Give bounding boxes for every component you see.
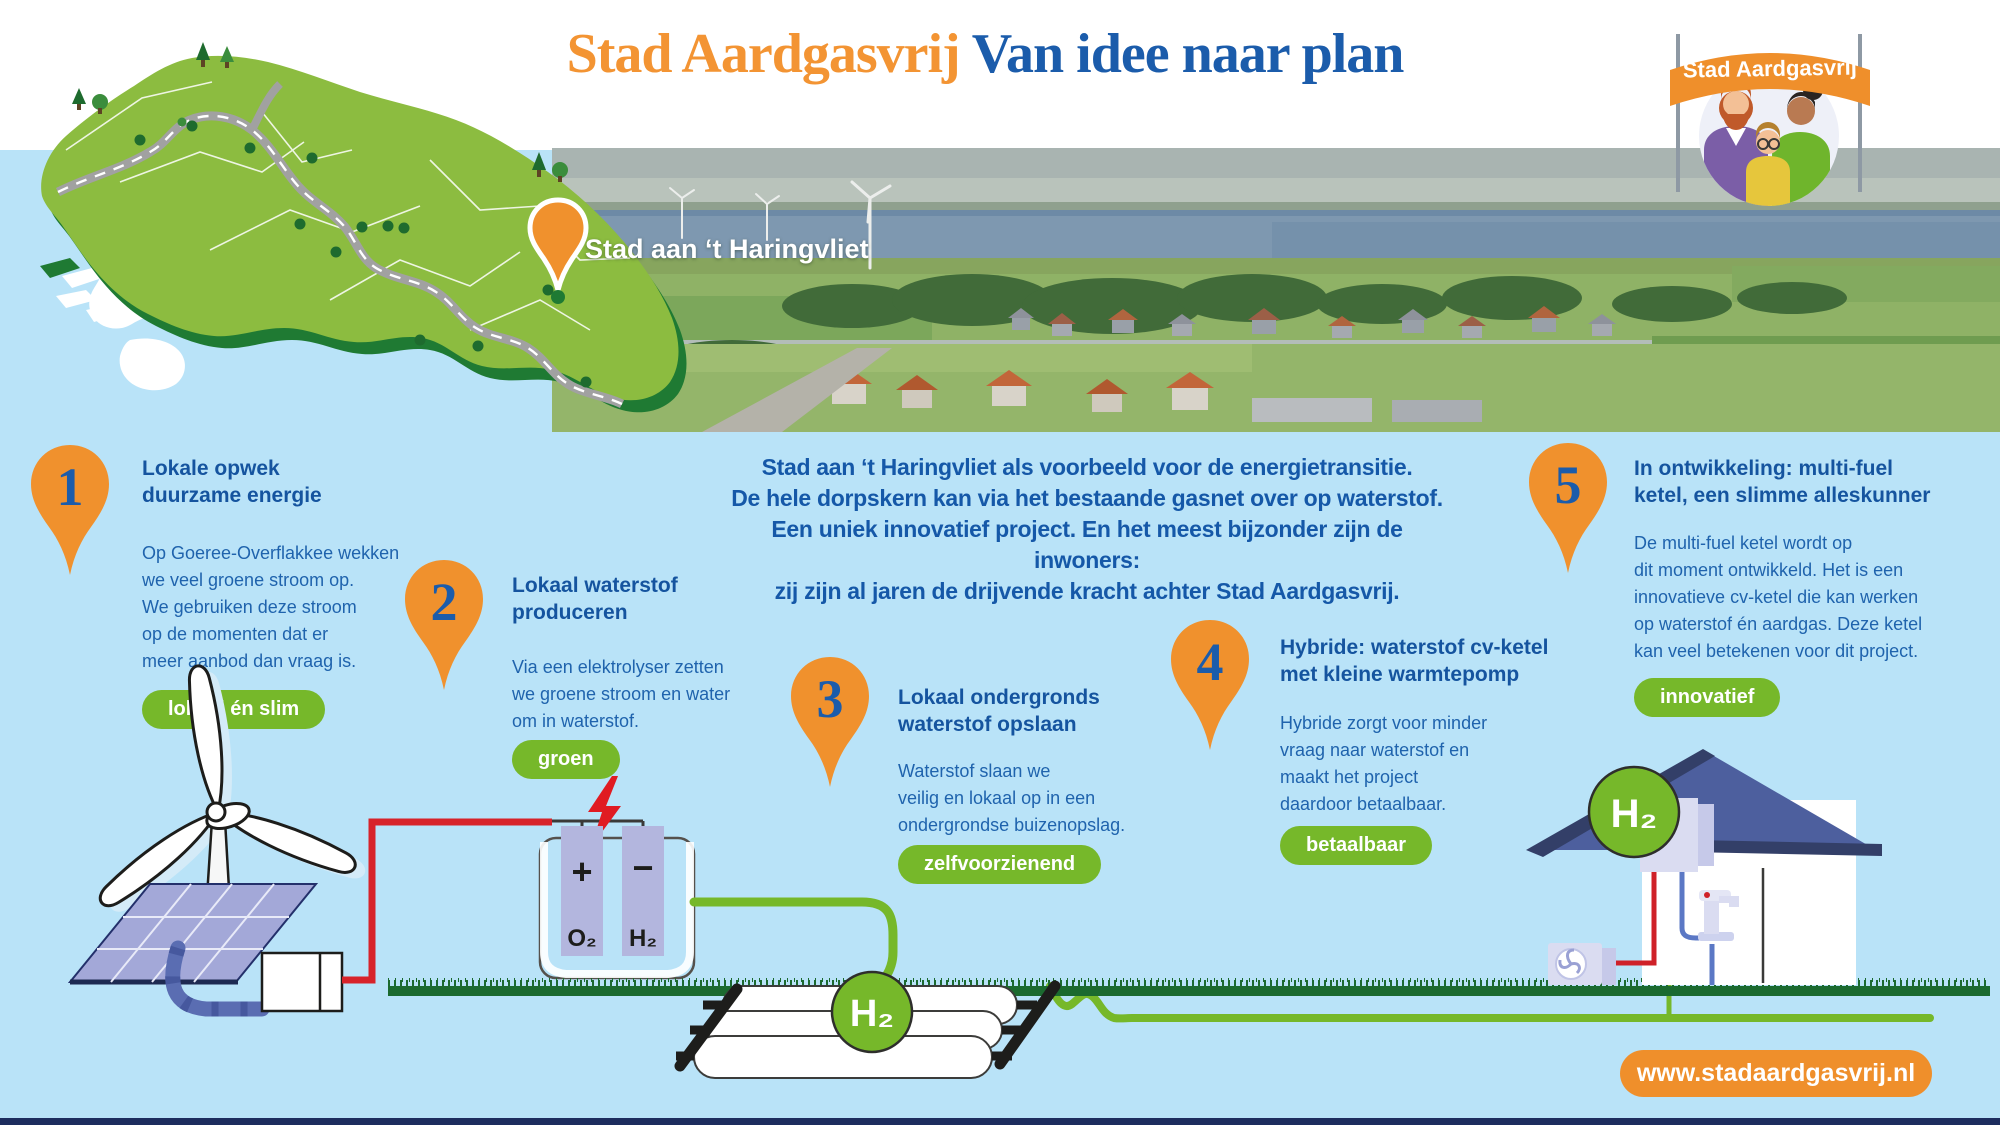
heat-pump-icon	[1548, 943, 1616, 985]
step-4-badge: betaalbaar	[1280, 826, 1432, 865]
h2-badge-storage: H₂	[832, 972, 912, 1052]
step-number-5: 5	[1555, 455, 1582, 515]
step-4-title: Hybride: waterstof cv-ketel met kleine w…	[1280, 634, 1600, 688]
converter-box-icon	[262, 953, 342, 1011]
logo-banner-text: Stad Aardgasvrij	[1683, 54, 1857, 82]
step-5-body: De multi-fuel ketel wordt op dit moment …	[1634, 530, 1964, 665]
step-number-3: 3	[817, 669, 844, 729]
photo-location-pin-icon	[526, 196, 590, 312]
step-pin-5: 5	[1526, 441, 1610, 599]
logo-post-right	[1858, 34, 1862, 192]
electricity-cable-red	[342, 821, 643, 980]
underground-storage-icon	[676, 986, 1055, 1078]
electrolyser-icon: + − O₂ H₂	[540, 826, 694, 978]
step-pin-1: 1	[28, 443, 112, 601]
water-pipe-blue	[1682, 872, 1712, 985]
step-number-1: 1	[57, 457, 84, 517]
step-3-title: Lokaal ondergronds waterstof opslaan	[898, 684, 1178, 738]
step-number-2: 2	[431, 572, 458, 632]
faucet-icon	[1698, 890, 1739, 941]
electrolyser-h2-label: H₂	[629, 925, 657, 952]
electrolyser-plus-label: +	[571, 851, 592, 892]
intro-text: Stad aan ‘t Haringvliet als voorbeeld vo…	[722, 452, 1452, 607]
boiler-icon	[1640, 798, 1714, 872]
step-2-title: Lokaal waterstof produceren	[512, 572, 772, 626]
website-link[interactable]: www.stadaardgasvrij.nl	[1620, 1050, 1932, 1097]
conduit-pipe-icon	[173, 948, 262, 1009]
step-1-body: Op Goeree-Overflakkee wekken we veel gro…	[142, 540, 432, 675]
electrolyser-o2-label: O₂	[567, 925, 596, 952]
title-brand: Stad Aardgasvrij	[567, 23, 960, 85]
step-3-badge: zelfvoorzienend	[898, 845, 1101, 884]
house-pipes	[1610, 872, 1712, 985]
h2-badge-house: H₂	[1589, 767, 1679, 857]
step-number-4: 4	[1197, 632, 1224, 692]
electrolyser-minus-label: −	[632, 847, 653, 888]
bottom-border-bar	[0, 1118, 2000, 1125]
photo-pin-label: Stad aan ‘t Haringvliet	[585, 234, 869, 265]
grass-strip	[388, 980, 1990, 996]
logo-post-left	[1676, 34, 1680, 192]
step-2-body: Via een elektrolyser zetten we groene st…	[512, 654, 802, 735]
storage-h2-label: H₂	[850, 993, 894, 1035]
step-5-badge: innovatief	[1634, 678, 1780, 717]
step-pin-4: 4	[1168, 618, 1252, 776]
step-5-title: In ontwikkeling: multi-fuel ketel, een s…	[1634, 455, 1964, 509]
lightning-icon	[588, 776, 621, 847]
step-1-badge: lokaal én slim	[142, 690, 325, 729]
brand-logo: Stad Aardgasvrij	[1660, 8, 1900, 208]
solar-panel-icon	[70, 884, 316, 982]
title-subtitle: Van idee naar plan	[972, 23, 1404, 85]
step-2-badge: groen	[512, 740, 620, 779]
heating-pipe-red	[1610, 872, 1654, 963]
hydrogen-pipe-green	[694, 872, 1930, 1018]
step-4-body: Hybride zorgt voor minder vraag naar wat…	[1280, 710, 1580, 818]
house-h2-label: H₂	[1611, 792, 1658, 836]
infographic-canvas: Stad Aardgasvrij Van idee naar plan	[0, 0, 2000, 1125]
step-3-body: Waterstof slaan we veilig en lokaal op i…	[898, 758, 1198, 839]
step-1-title: Lokale opwek duurzame energie	[142, 455, 402, 509]
